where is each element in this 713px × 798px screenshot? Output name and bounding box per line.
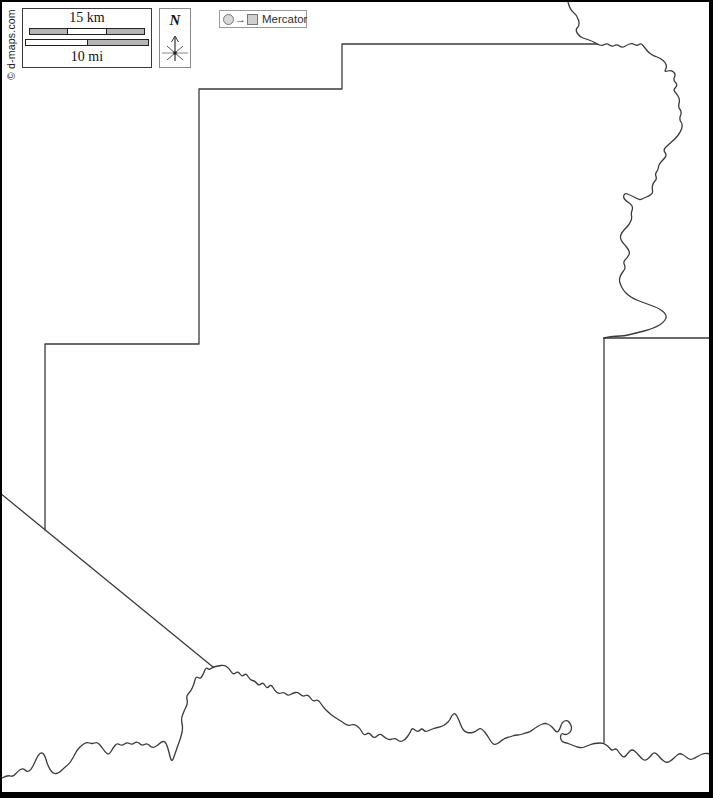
map-canvas [0, 0, 713, 798]
km-scale-bar [29, 28, 145, 35]
compass-box: N [159, 8, 191, 68]
north-step-boundary [45, 44, 597, 530]
projection-label: Mercator [262, 13, 307, 25]
scale-km-label: 15 km [69, 10, 104, 26]
scale-mi-label: 10 mi [71, 49, 103, 65]
southwest-diagonal-boundary [0, 493, 213, 667]
mi-scale-segment [26, 40, 87, 45]
projection-legend: → Mercator [219, 10, 307, 28]
arrow-right-icon: → [235, 14, 246, 24]
frame-border-bottom [0, 792, 713, 798]
compass-rose-icon [161, 29, 189, 65]
mi-scale-segment [87, 40, 149, 45]
scale-box: 15 km 10 mi [22, 8, 152, 68]
map-page: 15 km 10 mi N → Mercator © d-maps.com [0, 0, 713, 798]
km-scale-segment [106, 29, 144, 34]
square-icon [247, 14, 258, 25]
northeast-river-boundary [568, 2, 682, 338]
circle-icon [223, 14, 234, 25]
mi-scale-bar [25, 39, 149, 46]
frame-border-top [0, 0, 713, 2]
copyright-text: © d-maps.com [5, 9, 17, 80]
km-scale-segment [67, 29, 105, 34]
km-scale-segment [30, 29, 67, 34]
frame-border-right [709, 0, 713, 798]
north-label: N [170, 11, 181, 29]
frame-border-left [0, 0, 2, 798]
